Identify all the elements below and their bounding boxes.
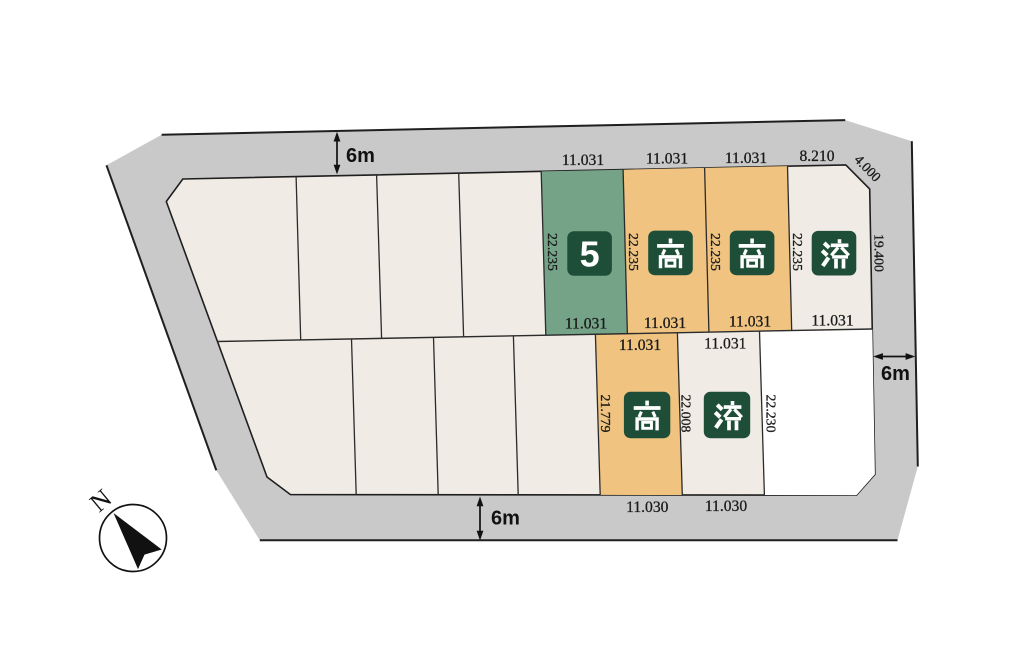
svg-text:6m: 6m [491, 508, 520, 530]
svg-text:21.779: 21.779 [598, 395, 613, 433]
svg-text:11.031: 11.031 [562, 152, 604, 169]
svg-text:22.230: 22.230 [763, 395, 778, 433]
svg-text:11.030: 11.030 [705, 498, 748, 515]
svg-text:11.031: 11.031 [619, 337, 661, 354]
svg-text:11.031: 11.031 [729, 314, 771, 331]
svg-text:11.031: 11.031 [644, 315, 686, 332]
svg-text:6m: 6m [881, 363, 910, 385]
svg-text:22.235: 22.235 [708, 233, 723, 271]
svg-text:22.235: 22.235 [626, 233, 641, 271]
svg-text:11.031: 11.031 [565, 316, 607, 333]
svg-text:6m: 6m [346, 145, 375, 167]
svg-text:22.235: 22.235 [790, 233, 805, 271]
svg-text:5: 5 [580, 234, 600, 275]
svg-text:11.031: 11.031 [811, 313, 853, 330]
svg-text:8.210: 8.210 [799, 148, 834, 165]
svg-text:11.031: 11.031 [704, 336, 746, 353]
svg-text:22.235: 22.235 [545, 233, 560, 271]
svg-text:11.030: 11.030 [626, 499, 669, 516]
svg-text:11.031: 11.031 [725, 150, 767, 167]
svg-text:19.400: 19.400 [872, 234, 887, 272]
svg-text:22.008: 22.008 [679, 395, 694, 433]
svg-text:11.031: 11.031 [646, 151, 688, 168]
